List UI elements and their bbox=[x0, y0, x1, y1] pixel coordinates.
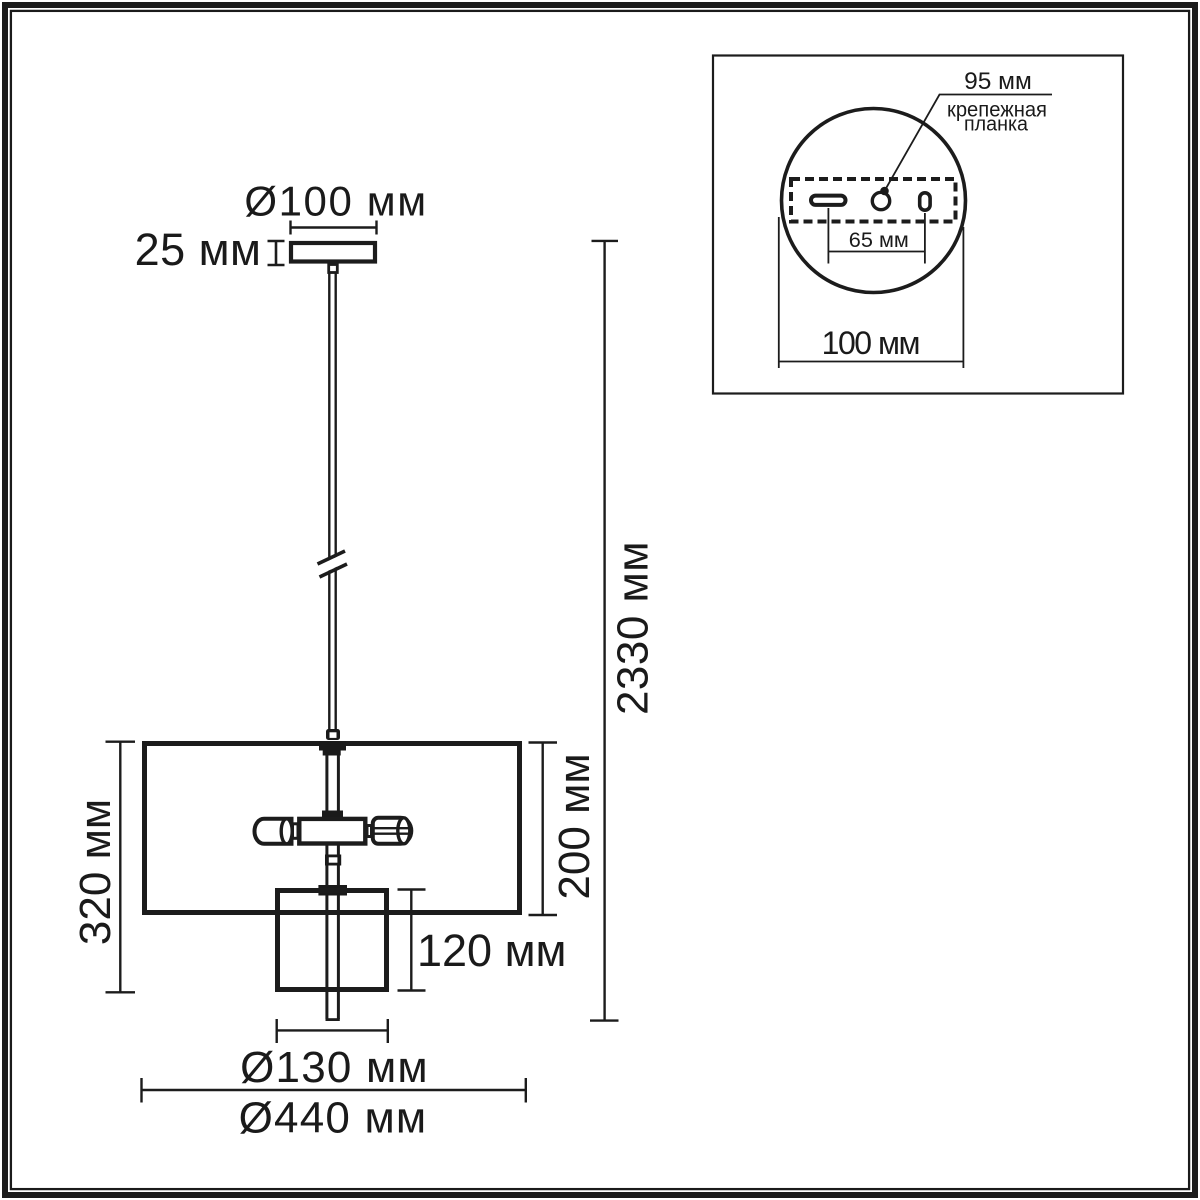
svg-text:Ø130 мм: Ø130 мм bbox=[240, 1043, 429, 1092]
svg-text:200 мм: 200 мм bbox=[550, 753, 599, 899]
svg-text:65 мм: 65 мм bbox=[849, 227, 909, 252]
svg-text:2330 мм: 2330 мм bbox=[609, 541, 658, 715]
svg-text:95 мм: 95 мм bbox=[964, 68, 1032, 95]
svg-text:100 мм: 100 мм bbox=[822, 325, 919, 361]
svg-text:планка: планка bbox=[964, 112, 1029, 135]
svg-text:320 мм: 320 мм bbox=[71, 799, 120, 945]
svg-text:Ø440 мм: Ø440 мм bbox=[239, 1094, 428, 1143]
svg-text:25 мм: 25 мм bbox=[135, 224, 262, 275]
svg-text:120 мм: 120 мм bbox=[417, 925, 566, 976]
svg-text:Ø100 мм: Ø100 мм bbox=[244, 178, 427, 225]
